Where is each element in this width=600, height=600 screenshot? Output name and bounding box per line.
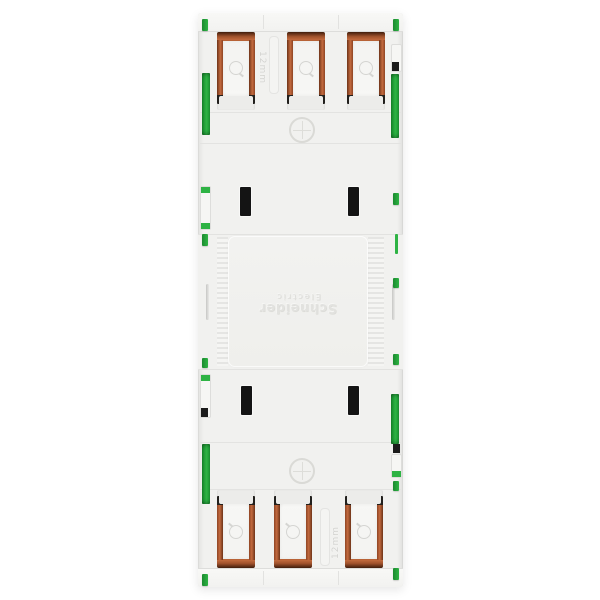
cap-seam xyxy=(263,15,264,29)
mold-seam xyxy=(200,143,401,144)
center-panel: Schneider Electric xyxy=(228,236,368,367)
release-icon xyxy=(299,61,313,75)
latch-notch xyxy=(393,444,400,453)
terminal xyxy=(287,32,325,110)
mounting-clip xyxy=(393,278,399,288)
mounting-clip xyxy=(202,73,210,135)
cap-seam xyxy=(263,571,264,585)
terminal xyxy=(345,490,383,568)
terminal-insert xyxy=(223,504,249,559)
copper-leg xyxy=(249,503,255,560)
mounting-clip xyxy=(393,193,399,205)
terminal-base xyxy=(219,491,253,504)
release-icon xyxy=(286,525,300,539)
brand-name: Schneider xyxy=(228,301,368,314)
clip-bracket xyxy=(391,44,402,72)
terminal xyxy=(217,32,255,110)
mounting-clip xyxy=(393,354,399,365)
mounting-clip xyxy=(393,568,399,580)
mounting-clip xyxy=(393,19,399,31)
module-slot xyxy=(240,187,251,216)
raised-tab xyxy=(320,508,330,566)
terminal xyxy=(274,490,312,568)
side-handle xyxy=(392,284,395,320)
raised-tab xyxy=(269,36,279,94)
mounting-clip xyxy=(391,394,399,444)
strip-length-label: 12mm xyxy=(257,51,267,97)
terminal-insert xyxy=(280,504,306,559)
bottom-cap xyxy=(198,568,403,587)
latch-notch xyxy=(392,62,399,71)
clip-bracket xyxy=(200,186,211,230)
terminal-insert xyxy=(223,41,249,96)
terminal-base xyxy=(349,96,383,109)
brand-logo: Schneider Electric xyxy=(228,292,368,314)
clip-bracket xyxy=(200,374,211,418)
mounting-clip xyxy=(395,234,398,254)
product-photo: 12mm Schneider Electric xyxy=(0,0,600,600)
mounting-clip xyxy=(392,471,401,477)
module-slot xyxy=(348,386,359,415)
screw-marking-icon xyxy=(289,117,315,143)
terminal xyxy=(347,32,385,110)
cap-seam xyxy=(338,571,339,585)
terminal xyxy=(217,490,255,568)
brand-subname: Electric xyxy=(228,292,368,301)
copper-leg xyxy=(379,40,385,97)
release-icon xyxy=(359,61,373,75)
terminal-base xyxy=(219,96,253,109)
cap-seam xyxy=(338,15,339,29)
mounting-clip xyxy=(202,19,208,31)
terminal-base xyxy=(289,96,323,109)
copper-leg xyxy=(377,503,383,560)
mounting-clip xyxy=(202,234,208,246)
strip-length-label: 12mm xyxy=(331,513,341,559)
release-icon xyxy=(229,525,243,539)
center-section: Schneider Electric xyxy=(198,234,403,370)
wiring-device-body: 12mm Schneider Electric xyxy=(198,13,403,587)
terminal-base xyxy=(276,491,310,504)
ribbed-texture xyxy=(368,237,384,366)
side-handle xyxy=(206,284,209,320)
module-slot xyxy=(348,187,359,216)
mounting-clip xyxy=(201,375,210,381)
terminal-insert xyxy=(293,41,319,96)
copper-leg xyxy=(249,40,255,97)
screw-marking-icon xyxy=(289,458,315,484)
terminal-insert xyxy=(351,504,377,559)
copper-leg xyxy=(306,503,312,560)
mounting-clip xyxy=(201,187,210,193)
terminal-insert xyxy=(353,41,379,96)
mounting-clip xyxy=(202,574,208,586)
top-cap xyxy=(198,13,403,32)
mounting-clip xyxy=(202,444,210,504)
terminal-base xyxy=(347,491,381,504)
latch-notch xyxy=(201,408,208,417)
module-slot xyxy=(241,386,252,415)
mounting-clip xyxy=(391,74,399,138)
mounting-clip xyxy=(202,358,208,368)
release-icon xyxy=(357,525,371,539)
mounting-clip xyxy=(393,481,399,491)
mold-seam xyxy=(200,442,401,443)
ribbed-texture xyxy=(217,237,228,366)
mounting-clip xyxy=(201,223,210,229)
mold-seam xyxy=(200,112,401,113)
clip-bracket xyxy=(391,454,402,478)
copper-leg xyxy=(319,40,325,97)
release-icon xyxy=(229,61,243,75)
